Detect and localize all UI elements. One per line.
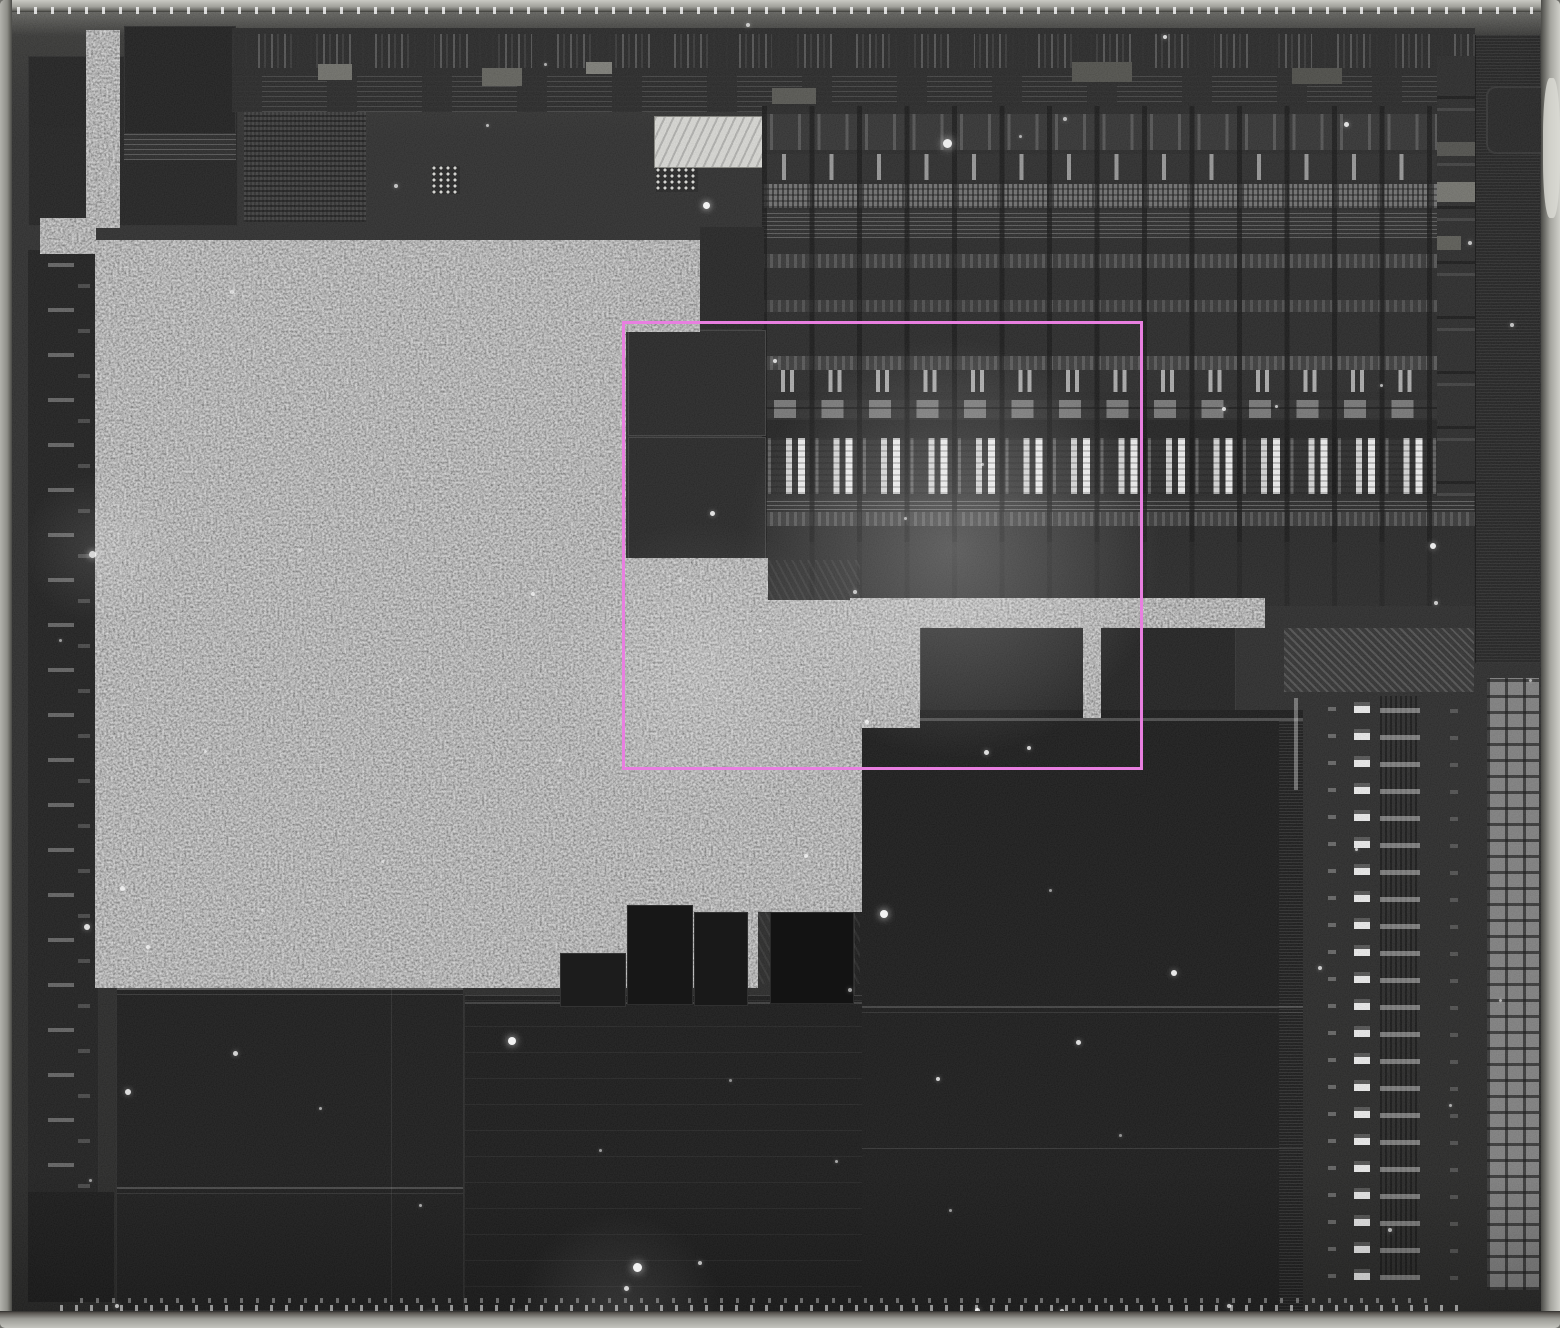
dust-speckle	[89, 1179, 92, 1182]
dust-speckle	[1119, 1134, 1122, 1137]
logic-bright-cell	[1292, 68, 1342, 84]
die-edge-top	[0, 0, 1560, 12]
dust-speckle	[936, 1077, 940, 1081]
dust-speckle	[710, 511, 715, 516]
logic-bright-cell	[772, 88, 816, 104]
dust-speckle	[559, 759, 562, 762]
dust-speckle	[84, 924, 90, 930]
array-band-bright-bars	[762, 438, 1475, 494]
array-band-dotpairs	[762, 370, 1475, 392]
macro-divider-line	[855, 1012, 1303, 1013]
macro-divider-line	[855, 1148, 1303, 1149]
mid-square-block	[1100, 611, 1236, 719]
texture-layer	[0, 0, 1560, 1328]
die-edge-right-bright-patch	[1543, 78, 1560, 218]
macro-divider-line	[117, 994, 463, 995]
dust-speckle	[204, 750, 207, 753]
array-column-separators-fade	[762, 542, 1475, 606]
pad-ring-left	[28, 250, 99, 1302]
dust-speckle	[508, 1037, 516, 1045]
array-column-separators	[762, 106, 1475, 542]
dust-speckle	[1060, 1309, 1064, 1313]
dust-speckle	[531, 592, 535, 596]
die-edge-left	[0, 0, 12, 1328]
small-logic-block	[770, 912, 854, 1004]
dust-speckle	[853, 590, 857, 594]
contact-dot-grid	[656, 168, 698, 192]
dark-macro-block-left	[116, 883, 464, 1311]
rounded-pad-block	[1486, 86, 1552, 154]
dust-speckle	[120, 886, 125, 891]
speckle-layer	[0, 0, 1560, 1328]
texture-band-thin	[850, 598, 1265, 628]
dust-speckle	[419, 1204, 422, 1207]
global-grain	[12, 6, 1544, 1316]
roi-dark-block-lower	[628, 437, 766, 559]
dark-macro-block-right	[855, 710, 1303, 1312]
texture-gap-strip	[1083, 612, 1101, 718]
dust-speckle	[949, 1209, 952, 1212]
dust-speckle	[1275, 405, 1278, 408]
dust-speckle	[125, 1089, 131, 1095]
bright-via-line	[1294, 698, 1298, 790]
dust-speckle	[1529, 679, 1532, 682]
dust-speckle	[865, 720, 869, 724]
die-edge-bottom-dots	[60, 1305, 1460, 1311]
dust-speckle	[703, 202, 710, 209]
dust-speckle	[1355, 848, 1358, 851]
dust-speckle	[233, 1051, 238, 1056]
logic-bright-cell	[1072, 62, 1132, 82]
rom-striped-block	[244, 110, 366, 222]
ladder-ticks-dim	[1450, 696, 1458, 1280]
macro-divider-line	[117, 988, 463, 990]
mid-square-block	[920, 613, 1090, 719]
logic-stripe-row	[232, 74, 1475, 112]
macro-divider-line	[855, 1006, 1303, 1008]
array-band-dots	[762, 154, 1475, 180]
dust-speckle	[880, 910, 888, 918]
dust-speckle	[319, 1107, 322, 1110]
array-band-dark	[762, 420, 1475, 440]
dust-speckle	[1222, 407, 1226, 411]
roi-dark-block-upper	[628, 330, 766, 436]
corner-dark-square	[124, 26, 236, 134]
logic-bright-cell	[482, 68, 522, 86]
dust-speckle	[633, 1263, 642, 1272]
dust-speckle	[261, 909, 264, 912]
array-band-dashes	[762, 400, 1475, 418]
top-bright-haze	[12, 6, 1544, 36]
dust-speckle	[230, 290, 234, 294]
dust-speckle	[1227, 1304, 1231, 1308]
array-band-dim	[762, 254, 1475, 268]
dust-speckle	[981, 463, 984, 466]
dust-speckle	[1171, 970, 1177, 976]
logic-bright-cell	[318, 64, 352, 80]
dust-speckle	[1468, 241, 1472, 245]
dust-speckle	[679, 579, 682, 582]
die-edge-bottom	[0, 1311, 1560, 1328]
array-band-fade	[762, 526, 1475, 606]
macro-top-edge-line	[855, 718, 1303, 721]
small-logic-block	[627, 905, 693, 1005]
corner-striped-cell	[124, 134, 236, 160]
dust-speckle	[943, 139, 952, 148]
dust-speckle	[399, 679, 402, 682]
dust-speckle	[984, 750, 989, 755]
dust-speckle	[1430, 543, 1436, 549]
array-band-dim	[762, 512, 1475, 526]
small-logic-block	[560, 953, 626, 1007]
dust-speckle	[115, 1304, 119, 1308]
corner-block-bottom-left	[28, 1192, 114, 1302]
roi-dark-block-top	[700, 227, 764, 329]
dust-speckle	[729, 1079, 732, 1082]
dust-speckle	[1163, 35, 1167, 39]
dust-speckle	[1063, 117, 1067, 121]
texture-corner-patch	[40, 218, 96, 254]
small-logic-block	[694, 912, 748, 1006]
roi-rectangle	[622, 321, 1143, 770]
dust-speckle	[394, 184, 398, 188]
dust-speckle	[1510, 323, 1514, 327]
dust-speckle	[59, 639, 62, 642]
array-band-stripes	[762, 210, 1475, 238]
dust-speckle	[299, 549, 302, 552]
array-band-dim	[762, 356, 1475, 370]
dust-speckle	[1049, 889, 1052, 892]
corner-logic-block	[28, 56, 238, 226]
cell-array	[762, 106, 1475, 606]
texture-corner-strip	[86, 30, 120, 228]
contact-dot-grid	[432, 166, 460, 194]
logic-bright-cell	[586, 62, 612, 74]
dust-speckle	[1449, 1104, 1452, 1107]
dust-speckle	[599, 1149, 602, 1152]
dust-speckle	[904, 517, 907, 520]
ladder-bright-rungs	[1354, 696, 1370, 1280]
dust-speckle	[486, 124, 489, 127]
dust-speckle	[746, 23, 750, 27]
pad-ladder-ticks	[48, 250, 74, 1302]
macro-vertical-divider	[391, 892, 392, 1302]
macro-faint-stripes	[465, 996, 862, 1313]
right-io-column	[1475, 35, 1540, 663]
dust-speckle	[146, 945, 150, 949]
dust-speckle	[759, 629, 762, 632]
array-band-celltops	[762, 114, 1475, 150]
right-io-dim-band	[1437, 142, 1475, 156]
dust-speckle	[1388, 1228, 1392, 1232]
die-edge-top-dots	[0, 7, 1560, 14]
macro-top-edge-line	[465, 1002, 862, 1004]
ladder-structure	[1282, 598, 1540, 1312]
array-band-stripes	[762, 498, 1475, 510]
dust-speckle	[848, 988, 852, 992]
dust-speckle	[835, 1160, 838, 1163]
dust-speckle	[1027, 746, 1031, 750]
right-io-dim-band	[1437, 236, 1461, 250]
white-probe-mark	[654, 116, 768, 168]
right-io-bright-band	[1437, 182, 1475, 202]
dark-macro-block-bottom	[465, 995, 862, 1313]
array-band-bright-speckle	[762, 184, 1475, 208]
dust-speckle	[698, 1261, 702, 1265]
dust-speckle	[1019, 135, 1022, 138]
die-photograph	[0, 0, 1560, 1328]
die-edge-right	[1541, 0, 1560, 1328]
logic-tick-row	[232, 34, 1475, 68]
die-surface	[12, 6, 1544, 1316]
macro-striped-strip	[1279, 720, 1303, 1310]
glow-overlay	[0, 0, 1560, 1328]
macro-divider-line	[117, 1187, 463, 1189]
texture-streaks	[95, 240, 626, 988]
top-logic-band	[232, 28, 1475, 112]
vignette	[0, 0, 1560, 1328]
hatch-band	[1284, 628, 1474, 692]
dust-speckle	[89, 551, 96, 558]
ladder-ticks-dim	[1328, 702, 1336, 1278]
dust-speckle	[1344, 122, 1349, 127]
dust-speckle	[518, 1311, 522, 1315]
dust-speckle	[428, 1311, 432, 1315]
dust-speckle	[773, 359, 777, 363]
dust-speckle	[381, 860, 384, 863]
ladder-dash-column	[1380, 696, 1420, 1280]
seal-ring-dots	[80, 1298, 1440, 1303]
dust-speckle	[1076, 1040, 1081, 1045]
texture-field	[95, 240, 920, 988]
dust-speckle	[975, 1308, 980, 1313]
dust-speckle	[1380, 384, 1383, 387]
texture-streaks	[628, 560, 860, 984]
dust-speckle	[1318, 966, 1322, 970]
dust-speckle	[544, 63, 547, 66]
macro-divider-line	[117, 1193, 463, 1194]
array-band-dim	[762, 300, 1475, 312]
via-grid	[1487, 678, 1539, 1290]
right-io-cells	[1437, 56, 1475, 496]
pad-ladder-ticks-2	[78, 260, 90, 1300]
dust-speckle	[624, 1286, 629, 1291]
dust-speckle	[1434, 601, 1438, 605]
dust-speckle	[804, 854, 808, 858]
dust-speckle	[1499, 999, 1502, 1002]
